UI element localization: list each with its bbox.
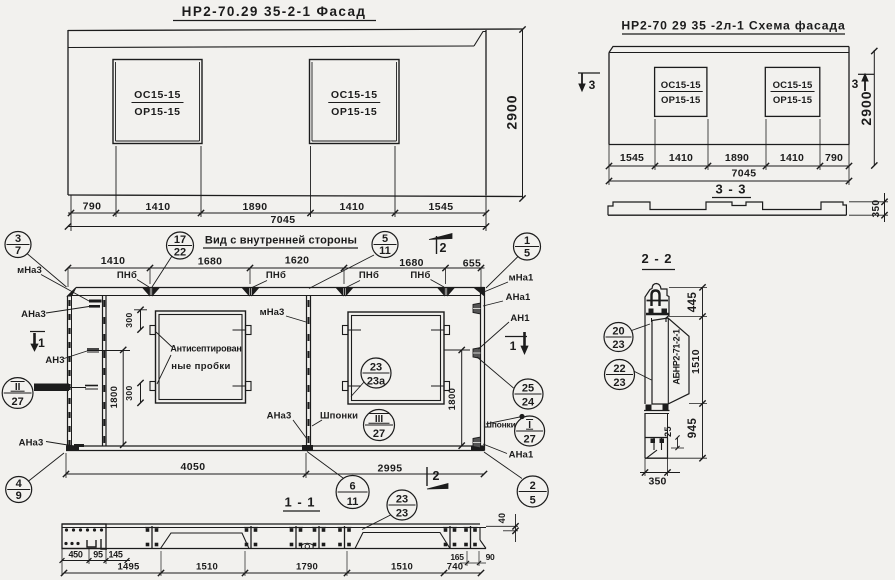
svg-text:3: 3 — [852, 77, 859, 91]
svg-text:5: 5 — [524, 248, 530, 260]
svg-text:165: 165 — [450, 552, 464, 562]
svg-text:1510: 1510 — [391, 562, 413, 573]
svg-text:1495: 1495 — [118, 562, 140, 573]
svg-text:мНа3: мНа3 — [260, 307, 285, 318]
svg-text:350: 350 — [871, 200, 882, 218]
svg-text:ОР15-15: ОР15-15 — [134, 106, 180, 118]
svg-text:7045: 7045 — [271, 214, 296, 226]
svg-text:АН3: АН3 — [45, 355, 64, 366]
svg-text:23: 23 — [396, 508, 408, 520]
svg-text:2 - 2: 2 - 2 — [641, 251, 672, 266]
svg-text:АНа3: АНа3 — [21, 309, 46, 320]
svg-text:АНа3: АНа3 — [267, 411, 292, 422]
svg-text:17: 17 — [174, 234, 186, 246]
svg-text:2995: 2995 — [378, 463, 403, 475]
svg-text:22: 22 — [613, 363, 625, 375]
svg-text:мНа1: мНа1 — [509, 273, 534, 284]
svg-text:23: 23 — [613, 377, 625, 389]
svg-text:ОС15-15: ОС15-15 — [134, 89, 181, 101]
svg-text:АНа1: АНа1 — [509, 450, 534, 461]
svg-text:2: 2 — [440, 241, 447, 255]
svg-text:350: 350 — [648, 476, 666, 488]
svg-text:1680: 1680 — [198, 256, 223, 268]
svg-text:23: 23 — [370, 362, 382, 374]
svg-text:мНа3: мНа3 — [17, 265, 42, 276]
svg-text:27: 27 — [11, 396, 23, 408]
svg-text:ПНб: ПНб — [359, 270, 379, 281]
svg-text:ПНб: ПНб — [410, 270, 430, 281]
svg-text:ПНб: ПНб — [266, 270, 286, 281]
svg-text:790: 790 — [825, 152, 843, 164]
svg-text:ОС15-15: ОС15-15 — [773, 80, 813, 91]
svg-text:7: 7 — [15, 245, 21, 257]
svg-text:5: 5 — [382, 233, 388, 245]
svg-text:1890: 1890 — [243, 201, 268, 213]
svg-text:ОР15-15: ОР15-15 — [661, 95, 701, 106]
svg-text:20: 20 — [612, 326, 624, 338]
svg-text:1890: 1890 — [725, 152, 749, 164]
svg-text:ные пробки: ные пробки — [171, 361, 231, 372]
svg-text:445: 445 — [687, 292, 699, 313]
svg-text:АБНР2-71-2-1: АБНР2-71-2-1 — [672, 329, 682, 385]
svg-text:4: 4 — [16, 478, 23, 490]
svg-text:Антисептирован: Антисептирован — [170, 344, 241, 354]
svg-text:1545: 1545 — [429, 201, 454, 213]
svg-text:1620: 1620 — [285, 255, 310, 267]
svg-text:1410: 1410 — [146, 201, 171, 213]
svg-text:2900: 2900 — [858, 90, 874, 125]
svg-text:Вид с внутренней стороны: Вид с внутренней стороны — [205, 235, 357, 247]
svg-text:3: 3 — [589, 78, 596, 92]
svg-text:11: 11 — [379, 245, 391, 257]
svg-text:АН1: АН1 — [510, 313, 530, 324]
svg-text:ОР15-15: ОР15-15 — [331, 106, 377, 118]
svg-text:5: 5 — [530, 495, 536, 507]
svg-text:НР2-70.29 35-2-1 Фасад: НР2-70.29 35-2-1 Фасад — [182, 4, 367, 19]
svg-text:2: 2 — [433, 469, 440, 483]
svg-text:1790: 1790 — [296, 562, 318, 573]
svg-text:23: 23 — [612, 339, 624, 351]
svg-text:27: 27 — [373, 428, 385, 440]
svg-text:1410: 1410 — [340, 201, 365, 213]
svg-text:300: 300 — [124, 385, 134, 400]
svg-text:1510: 1510 — [690, 349, 702, 374]
svg-text:11: 11 — [347, 496, 359, 508]
svg-text:ОС15-15: ОС15-15 — [331, 89, 378, 101]
svg-text:450: 450 — [68, 550, 82, 560]
svg-text:1: 1 — [38, 336, 45, 350]
svg-text:40: 40 — [497, 513, 507, 524]
svg-text:24: 24 — [522, 397, 535, 409]
svg-text:1510: 1510 — [196, 562, 218, 573]
svg-text:145: 145 — [108, 550, 122, 560]
svg-text:23а: 23а — [367, 376, 386, 388]
svg-text:1 - 1: 1 - 1 — [284, 495, 315, 510]
svg-text:25: 25 — [663, 426, 673, 437]
svg-text:945: 945 — [687, 418, 699, 439]
svg-text:3: 3 — [15, 233, 21, 245]
svg-text:7045: 7045 — [732, 168, 757, 180]
svg-text:95: 95 — [93, 550, 103, 560]
svg-text:АНа1: АНа1 — [506, 292, 531, 303]
svg-text:655: 655 — [463, 258, 481, 270]
svg-text:4050: 4050 — [181, 461, 206, 473]
svg-text:Шпонки: Шпонки — [320, 411, 358, 422]
svg-text:1410: 1410 — [101, 255, 126, 267]
svg-text:1: 1 — [510, 339, 517, 353]
svg-text:ОС15-15: ОС15-15 — [661, 80, 701, 91]
svg-text:22: 22 — [174, 247, 186, 259]
svg-text:1800: 1800 — [109, 386, 120, 409]
svg-text:2: 2 — [530, 480, 536, 492]
svg-text:1545: 1545 — [620, 152, 644, 164]
svg-text:НР2-70 29 35 -2л-1 Схема фасад: НР2-70 29 35 -2л-1 Схема фасада — [621, 19, 845, 33]
svg-text:300: 300 — [124, 312, 134, 327]
svg-text:2900: 2900 — [504, 94, 520, 129]
svg-text:23: 23 — [396, 494, 408, 506]
svg-text:АНа3: АНа3 — [19, 438, 44, 449]
svg-text:9: 9 — [16, 490, 22, 502]
svg-text:6: 6 — [350, 481, 356, 493]
svg-text:1: 1 — [524, 235, 530, 247]
svg-text:1800: 1800 — [447, 388, 458, 411]
svg-text:25: 25 — [522, 383, 534, 395]
svg-text:ПНб: ПНб — [117, 270, 137, 281]
svg-text:1680: 1680 — [399, 257, 424, 269]
svg-text:1410: 1410 — [780, 152, 804, 164]
svg-text:3 - 3: 3 - 3 — [715, 182, 746, 197]
svg-text:27: 27 — [523, 434, 535, 446]
svg-text:90: 90 — [486, 552, 495, 562]
svg-text:1410: 1410 — [669, 152, 693, 164]
svg-text:ОР15-15: ОР15-15 — [773, 95, 813, 106]
svg-text:790: 790 — [83, 201, 102, 213]
